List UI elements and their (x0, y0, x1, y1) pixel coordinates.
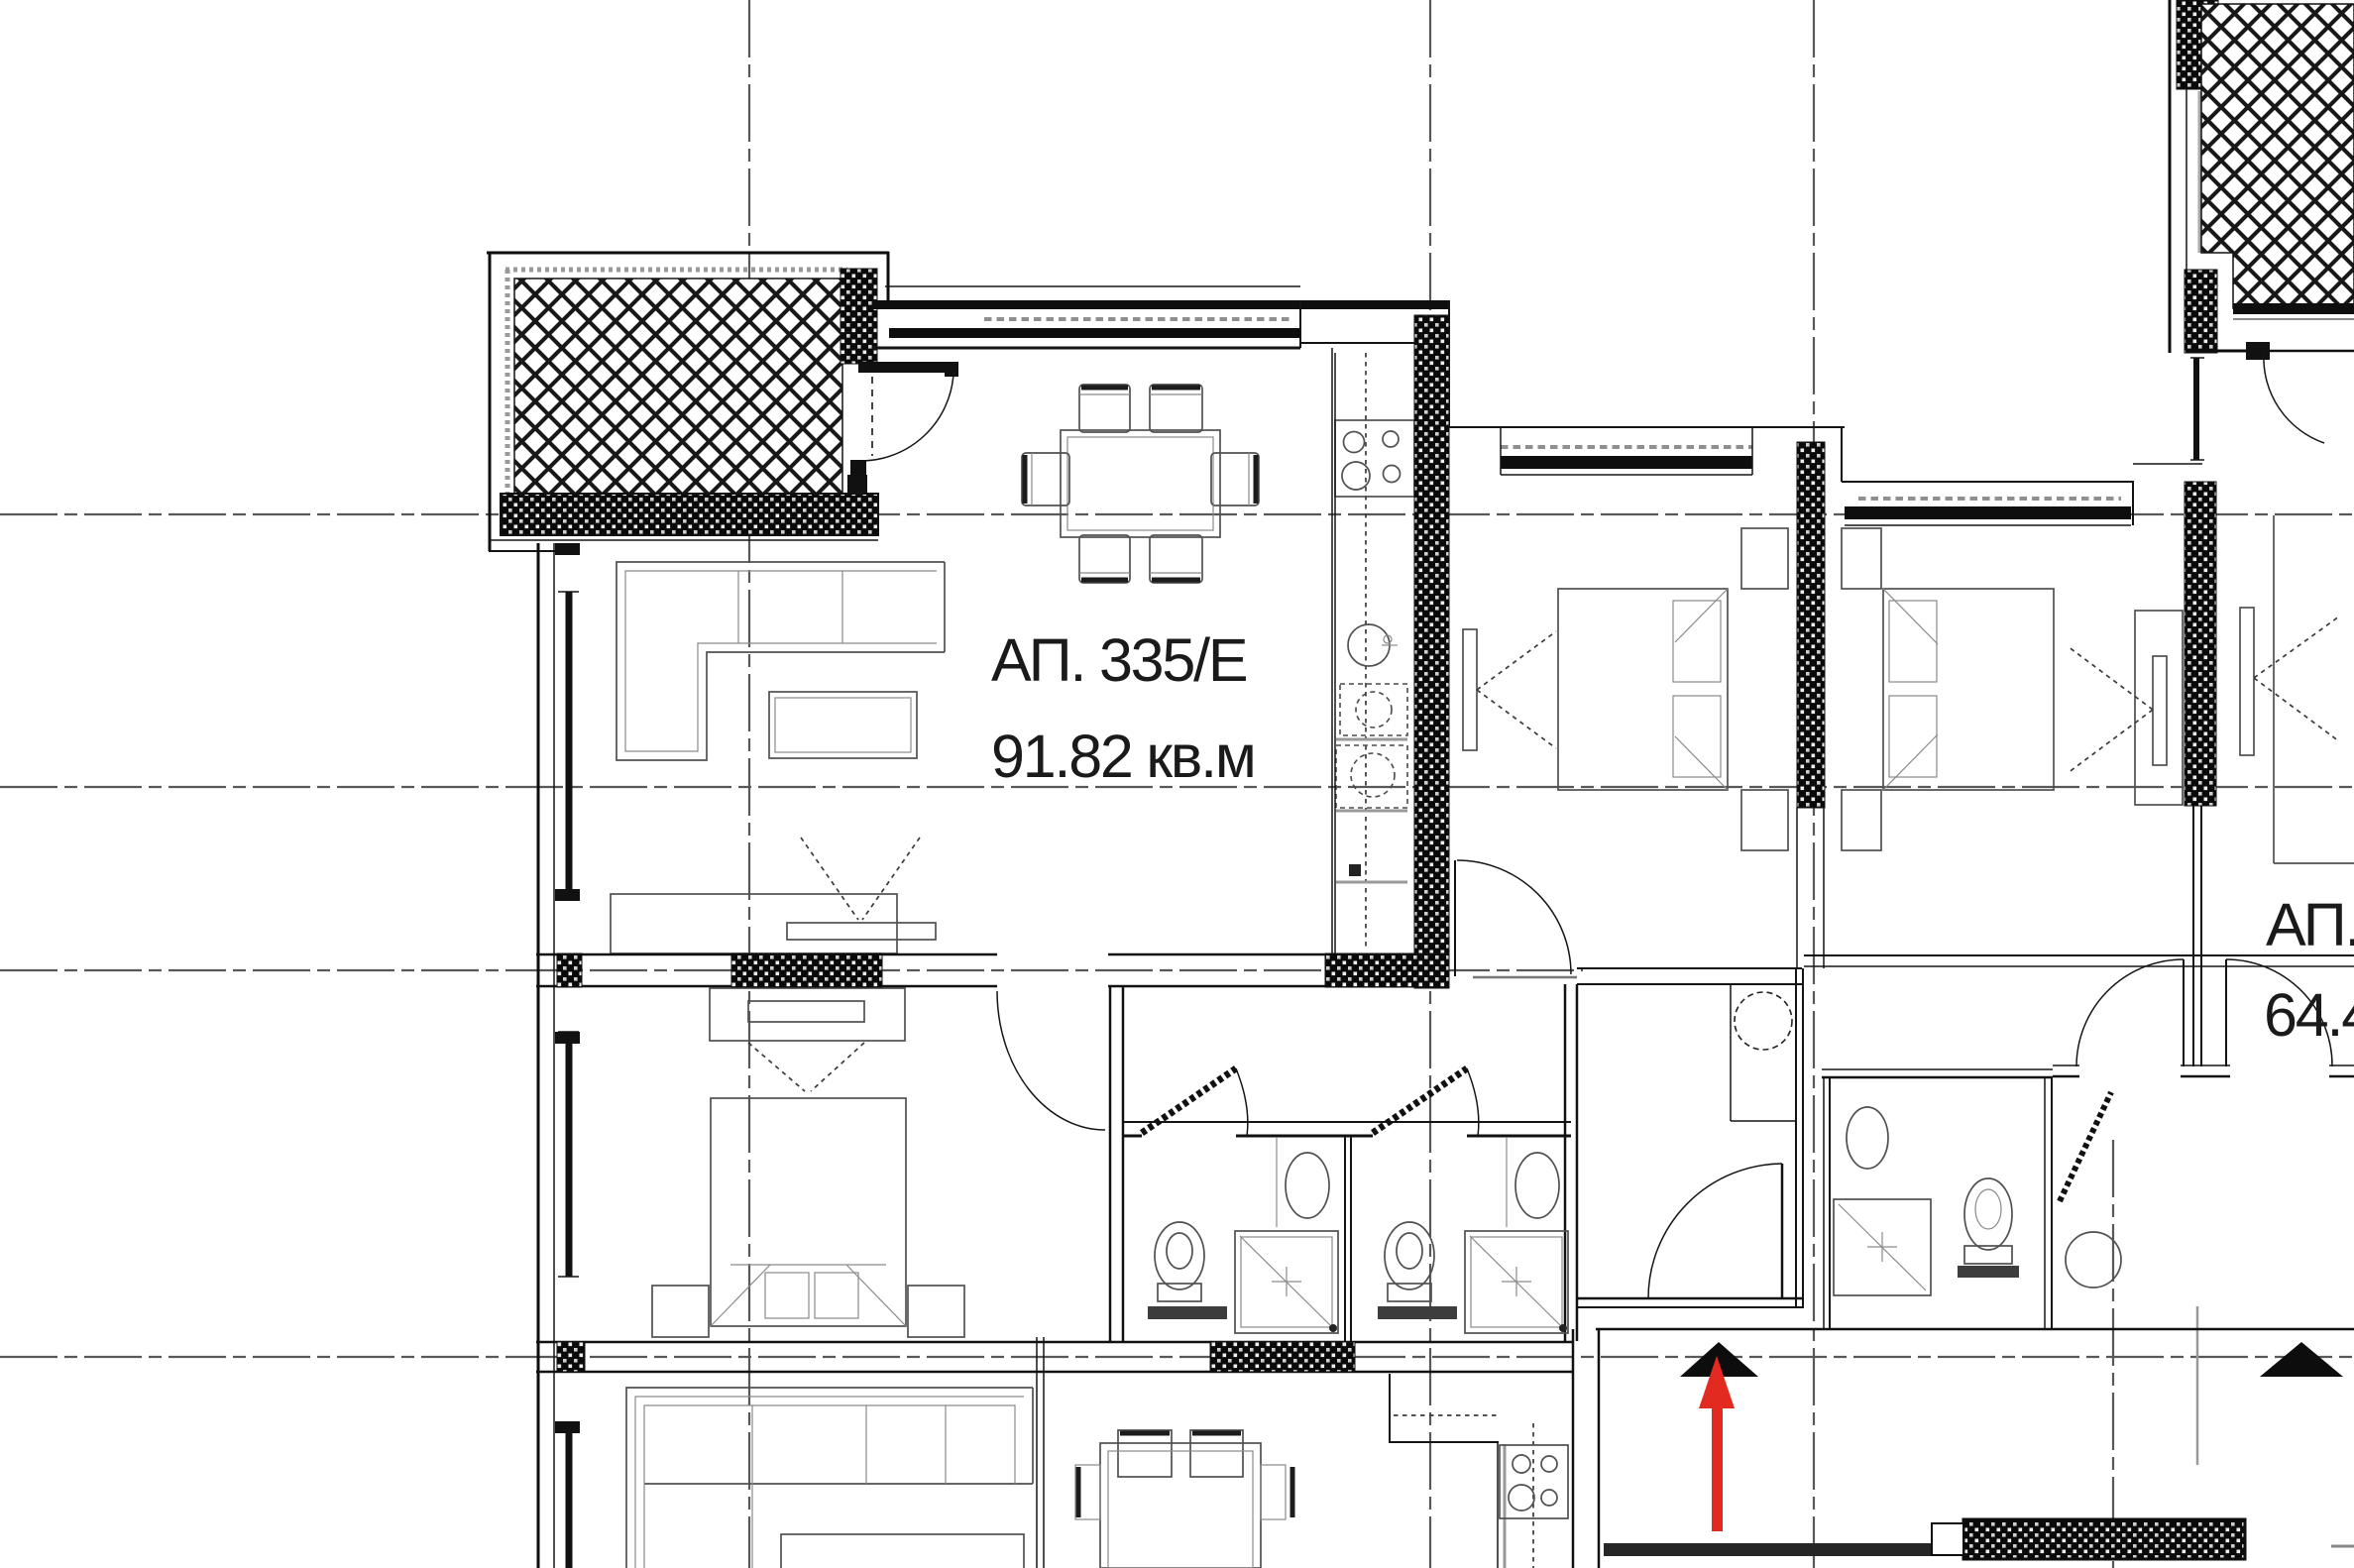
svg-text:АП.: АП. (2266, 891, 2354, 958)
svg-text:91.82 кв.м: 91.82 кв.м (991, 723, 1255, 790)
svg-text:АП. 335/Е: АП. 335/Е (991, 626, 1247, 694)
svg-text:64.4: 64.4 (2264, 981, 2354, 1049)
